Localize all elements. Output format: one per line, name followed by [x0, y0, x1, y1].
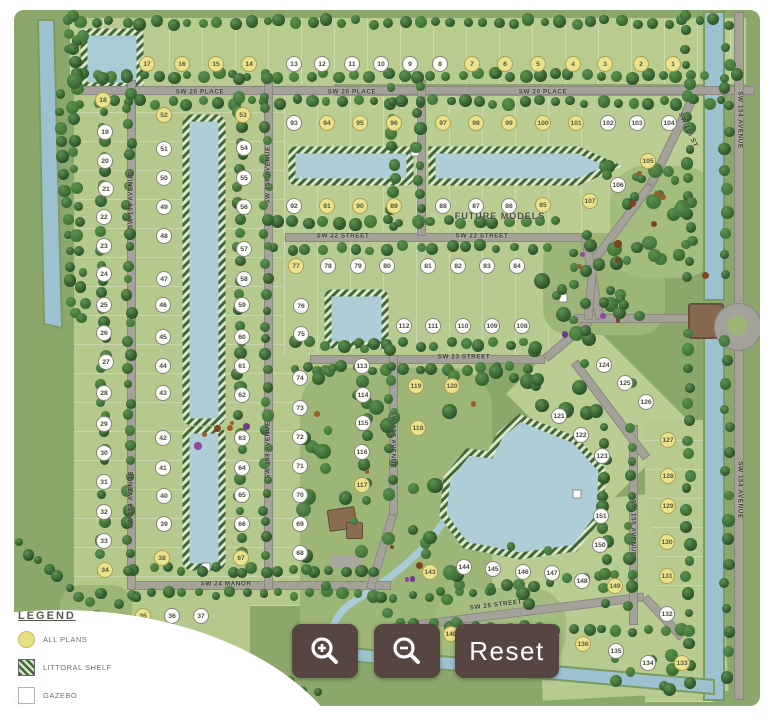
lot-marker[interactable]: 123	[594, 448, 610, 464]
lot-marker[interactable]: 14	[241, 56, 257, 72]
lot-marker[interactable]: 128	[660, 468, 676, 484]
lot-marker[interactable]: 53	[235, 107, 251, 123]
lot-marker[interactable]: 72	[292, 429, 308, 445]
lot-marker[interactable]: 66	[234, 516, 250, 532]
lot-marker[interactable]: 33	[96, 533, 112, 549]
lot-marker[interactable]: 92	[286, 198, 302, 214]
lot-marker[interactable]: 58	[236, 271, 252, 287]
lot-marker[interactable]: 126	[638, 394, 654, 410]
lot-marker[interactable]: 71	[292, 458, 308, 474]
lot-marker[interactable]: 50	[156, 170, 172, 186]
lot-marker[interactable]: 55	[236, 170, 252, 186]
lot-marker[interactable]: 30	[96, 445, 112, 461]
lot-marker[interactable]: 149	[607, 578, 623, 594]
lot-marker[interactable]: 81	[420, 258, 436, 274]
lot-marker[interactable]: 46	[155, 297, 171, 313]
lot-marker[interactable]: 130	[659, 534, 675, 550]
lot-marker[interactable]: 41	[155, 460, 171, 476]
lot-marker[interactable]: 76	[293, 298, 309, 314]
lot-marker[interactable]: 75	[293, 326, 309, 342]
lot-marker[interactable]: 132	[659, 606, 675, 622]
lot-marker[interactable]: 118	[410, 420, 426, 436]
lot-marker[interactable]: 1	[665, 56, 681, 72]
lot-marker[interactable]: 54	[236, 140, 252, 156]
lot-marker[interactable]: 114	[355, 387, 371, 403]
lot-marker[interactable]: 86	[501, 198, 517, 214]
lot-marker[interactable]: 127	[660, 432, 676, 448]
lot-marker[interactable]: 13	[286, 56, 302, 72]
lot-marker[interactable]: 125	[617, 375, 633, 391]
lot-marker[interactable]: 32	[96, 504, 112, 520]
lot-marker[interactable]: 111	[425, 318, 441, 334]
lot-marker[interactable]: 56	[236, 199, 252, 215]
legend-item: ALL PLANS	[18, 631, 158, 648]
lot-marker[interactable]: 8	[432, 56, 448, 72]
lot-marker[interactable]: 104	[661, 115, 677, 131]
lot-marker[interactable]: 17	[139, 56, 155, 72]
lot-marker[interactable]: 88	[435, 198, 451, 214]
lot-marker[interactable]: 45	[155, 329, 171, 345]
lot-marker[interactable]: 112	[396, 318, 412, 334]
lot-marker[interactable]: 82	[450, 258, 466, 274]
lot-marker[interactable]: 136	[575, 636, 591, 652]
lot-marker[interactable]: 80	[379, 258, 395, 274]
reset-button[interactable]: Reset	[455, 624, 559, 678]
lot-markers-layer: 1234567891011121314151617181920212223242…	[14, 10, 760, 706]
site-plan-page: { "map": { "future_models_label": "FUTUR…	[0, 0, 777, 722]
lot-marker[interactable]: 19	[97, 124, 113, 140]
lot-marker[interactable]: 117	[354, 477, 370, 493]
lot-marker[interactable]: 109	[484, 318, 500, 334]
lot-marker[interactable]: 6	[497, 56, 513, 72]
lot-marker[interactable]: 94	[319, 115, 335, 131]
lot-marker[interactable]: 89	[386, 198, 402, 214]
legend-item-label: LITTORAL SHELF	[43, 663, 112, 672]
lot-marker[interactable]: 11	[344, 56, 360, 72]
lot-marker[interactable]: 91	[319, 198, 335, 214]
lot-marker[interactable]: 122	[573, 427, 589, 443]
lot-marker[interactable]: 42	[155, 430, 171, 446]
lot-marker[interactable]: 61	[234, 358, 250, 374]
lot-marker[interactable]: 101	[568, 115, 584, 131]
zoom-out-button[interactable]	[374, 624, 440, 678]
lot-marker[interactable]: 62	[234, 387, 250, 403]
lot-marker[interactable]: 15	[208, 56, 224, 72]
lot-marker[interactable]: 68	[292, 545, 308, 561]
site-plan-map[interactable]: SW 20 PLACESW 20 PLACESW 20 PLACESW 22 S…	[14, 10, 760, 706]
lot-marker[interactable]: 57	[236, 241, 252, 257]
lot-marker[interactable]: 73	[292, 400, 308, 416]
lot-marker[interactable]: 12	[314, 56, 330, 72]
lot-marker[interactable]: 39	[156, 516, 172, 532]
lot-marker[interactable]: 51	[156, 141, 172, 157]
lot-marker[interactable]: 98	[468, 115, 484, 131]
lot-marker[interactable]: 105	[640, 153, 656, 169]
lot-marker[interactable]: 28	[96, 385, 112, 401]
lot-marker[interactable]: 133	[674, 655, 690, 671]
lot-marker[interactable]: 23	[96, 238, 112, 254]
lot-marker[interactable]: 77	[288, 258, 304, 274]
lot-marker[interactable]: 135	[608, 643, 624, 659]
lot-marker[interactable]: 145	[485, 561, 501, 577]
gazebo-square-icon	[18, 687, 35, 704]
lot-marker[interactable]: 121	[551, 408, 567, 424]
lot-marker[interactable]: 97	[435, 115, 451, 131]
lot-marker[interactable]: 95	[352, 115, 368, 131]
lot-marker[interactable]: 120	[444, 378, 460, 394]
lot-marker[interactable]: 5	[530, 56, 546, 72]
zoom-in-button[interactable]	[292, 624, 358, 678]
lot-marker[interactable]: 27	[98, 354, 114, 370]
lot-marker[interactable]: 79	[350, 258, 366, 274]
lot-marker[interactable]: 16	[174, 56, 190, 72]
lot-marker[interactable]: 115	[355, 415, 371, 431]
lot-marker[interactable]: 38	[154, 550, 170, 566]
lot-marker[interactable]: 22	[96, 209, 112, 225]
lot-marker[interactable]: 25	[96, 297, 112, 313]
lot-marker[interactable]: 65	[234, 487, 250, 503]
lot-marker[interactable]: 83	[479, 258, 495, 274]
lot-marker[interactable]: 110	[455, 318, 471, 334]
lot-marker[interactable]: 20	[97, 153, 113, 169]
lot-marker[interactable]: 4	[565, 56, 581, 72]
lot-marker[interactable]: 47	[156, 271, 172, 287]
lot-marker[interactable]: 106	[610, 177, 626, 193]
lot-marker[interactable]: 64	[234, 460, 250, 476]
legend-item: LITTORAL SHELF	[18, 659, 158, 676]
lot-marker[interactable]: 40	[156, 488, 172, 504]
lot-marker[interactable]: 10	[373, 56, 389, 72]
lot-marker[interactable]: 18	[95, 92, 111, 108]
lot-marker[interactable]: 87	[468, 198, 484, 214]
lot-marker[interactable]: 143	[422, 564, 438, 580]
lot-marker[interactable]: 37	[193, 608, 209, 624]
lot-marker[interactable]: 148	[574, 573, 590, 589]
lot-marker[interactable]: 124	[596, 357, 612, 373]
lot-marker[interactable]: 59	[234, 297, 250, 313]
magnifier-plus-icon	[308, 634, 342, 668]
lot-marker[interactable]: 67	[233, 550, 249, 566]
lot-marker[interactable]: 7	[464, 56, 480, 72]
lot-marker[interactable]: 99	[501, 115, 517, 131]
lot-marker[interactable]: 100	[535, 115, 551, 131]
lot-marker[interactable]: 48	[156, 228, 172, 244]
lot-marker[interactable]: 116	[354, 444, 370, 460]
legend-item: GAZEBO	[18, 687, 158, 704]
legend-item-label: ALL PLANS	[43, 635, 87, 644]
lot-marker[interactable]: 78	[320, 258, 336, 274]
lot-marker[interactable]: 9	[402, 56, 418, 72]
lot-marker[interactable]: 134	[640, 655, 656, 671]
all-plans-circle-icon	[18, 631, 35, 648]
lot-marker[interactable]: 52	[156, 107, 172, 123]
lot-marker[interactable]: 44	[155, 358, 171, 374]
lot-marker[interactable]: 74	[292, 370, 308, 386]
lot-marker[interactable]: 108	[514, 318, 530, 334]
magnifier-minus-icon	[390, 634, 424, 668]
lot-marker[interactable]: 146	[515, 564, 531, 580]
lot-marker[interactable]: 31	[96, 474, 112, 490]
lot-marker[interactable]: 3	[597, 56, 613, 72]
lot-marker[interactable]: 90	[352, 198, 368, 214]
lot-marker[interactable]: 21	[98, 181, 114, 197]
lot-marker[interactable]: 85	[535, 197, 551, 213]
legend-item-label: GAZEBO	[43, 691, 77, 700]
lot-marker[interactable]: 150	[592, 537, 608, 553]
lot-marker[interactable]: 69	[292, 516, 308, 532]
lot-marker[interactable]: 84	[509, 258, 525, 274]
lot-marker[interactable]: 107	[582, 193, 598, 209]
lot-marker[interactable]: 103	[629, 115, 645, 131]
lot-marker[interactable]: 29	[96, 416, 112, 432]
lot-marker[interactable]: 49	[156, 199, 172, 215]
legend: LEGEND ALL PLANSLITTORAL SHELFGAZEBO	[18, 610, 158, 706]
lot-marker[interactable]: 60	[234, 329, 250, 345]
littoral-hatch-icon	[18, 659, 35, 676]
lot-marker[interactable]: 93	[286, 115, 302, 131]
lot-marker[interactable]: 151	[593, 508, 609, 524]
lot-marker[interactable]: 96	[386, 115, 402, 131]
lot-marker[interactable]: 26	[96, 325, 112, 341]
lot-marker[interactable]: 63	[234, 430, 250, 446]
lot-marker[interactable]: 119	[408, 378, 424, 394]
lot-marker[interactable]: 43	[155, 385, 171, 401]
lot-marker[interactable]: 129	[660, 498, 676, 514]
lot-marker[interactable]: 147	[544, 565, 560, 581]
lot-marker[interactable]: 102	[600, 115, 616, 131]
lot-marker[interactable]: 131	[659, 568, 675, 584]
legend-title: LEGEND	[18, 610, 158, 622]
lot-marker[interactable]: 2	[633, 56, 649, 72]
lot-marker[interactable]: 34	[97, 562, 113, 578]
lot-marker[interactable]: 24	[96, 266, 112, 282]
lot-marker[interactable]: 70	[292, 487, 308, 503]
lot-marker[interactable]: 113	[354, 358, 370, 374]
lot-marker[interactable]: 144	[456, 559, 472, 575]
